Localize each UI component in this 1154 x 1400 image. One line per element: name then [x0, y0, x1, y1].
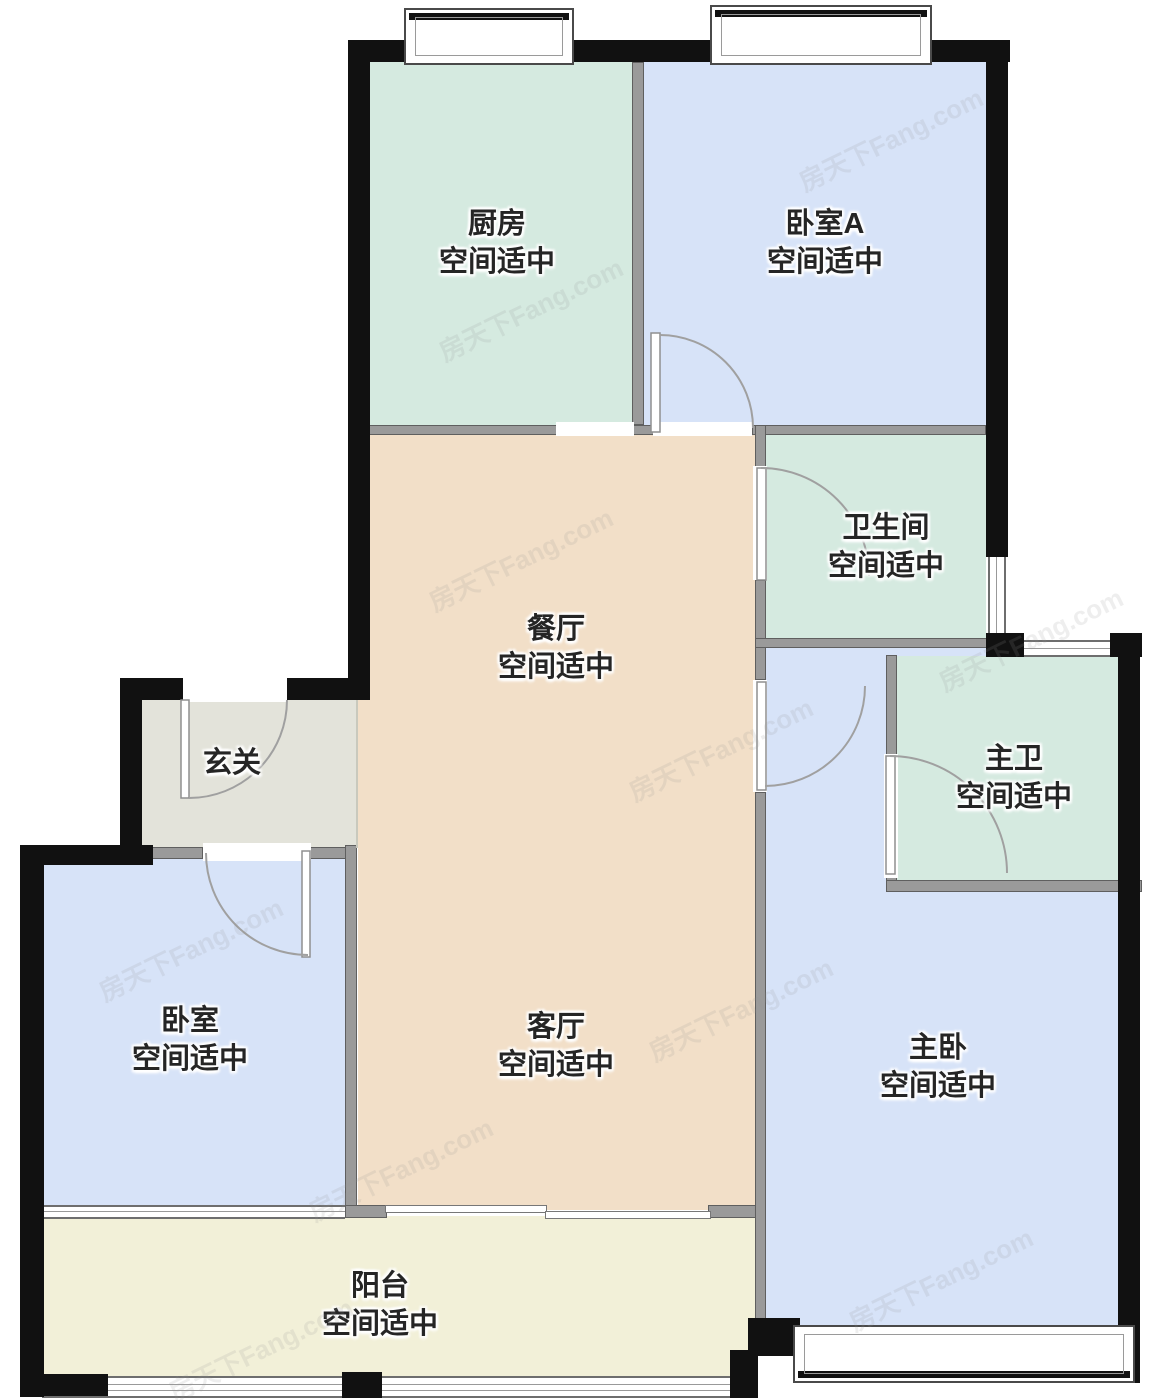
room-label-balcony: 阳台 空间适中 [322, 1267, 438, 1343]
room-label-master-bath: 主卫 空间适中 [956, 740, 1072, 816]
room-name: 卧室A [767, 205, 883, 243]
room-label-master-bedroom: 主卧 空间适中 [880, 1029, 996, 1105]
door-leaf [651, 333, 660, 432]
room-name: 卫生间 [828, 509, 944, 547]
room-name: 主卧 [880, 1029, 996, 1067]
door-arc [206, 853, 308, 955]
room-name: 客厅 [498, 1008, 614, 1046]
room-label-dining: 餐厅 空间适中 [498, 610, 614, 686]
floor-plan: 厨房 空间适中 卧室A 空间适中 卫生间 空间适中 餐厅 空间适中 玄关 主卫 … [0, 0, 1154, 1400]
room-label-bedroom: 卧室 空间适中 [132, 1002, 248, 1078]
room-name: 主卫 [956, 740, 1072, 778]
room-name: 餐厅 [498, 610, 614, 648]
room-note: 空间适中 [956, 778, 1072, 816]
room-note: 空间适中 [880, 1067, 996, 1105]
room-label-living: 客厅 空间适中 [498, 1008, 614, 1084]
room-name: 卧室 [132, 1002, 248, 1040]
door-leaf [886, 756, 895, 874]
room-note: 空间适中 [498, 648, 614, 686]
door-swings [0, 0, 1154, 1400]
door-leaf [757, 682, 766, 790]
door-arc [660, 335, 753, 428]
room-note: 空间适中 [132, 1040, 248, 1078]
door-leaf [181, 700, 189, 798]
room-name: 厨房 [439, 205, 555, 243]
room-name: 阳台 [322, 1267, 438, 1305]
room-note: 空间适中 [322, 1305, 438, 1343]
room-name: 玄关 [203, 744, 261, 782]
door-leaf [302, 851, 310, 957]
door-leaf [757, 468, 766, 580]
room-label-kitchen: 厨房 空间适中 [439, 205, 555, 281]
room-note: 空间适中 [828, 547, 944, 585]
room-label-bedroom-a: 卧室A 空间适中 [767, 205, 883, 281]
room-label-bathroom: 卫生间 空间适中 [828, 509, 944, 585]
room-note: 空间适中 [767, 243, 883, 281]
door-arc [765, 686, 865, 786]
room-label-entry: 玄关 [203, 744, 261, 782]
room-note: 空间适中 [439, 243, 555, 281]
room-note: 空间适中 [498, 1046, 614, 1084]
